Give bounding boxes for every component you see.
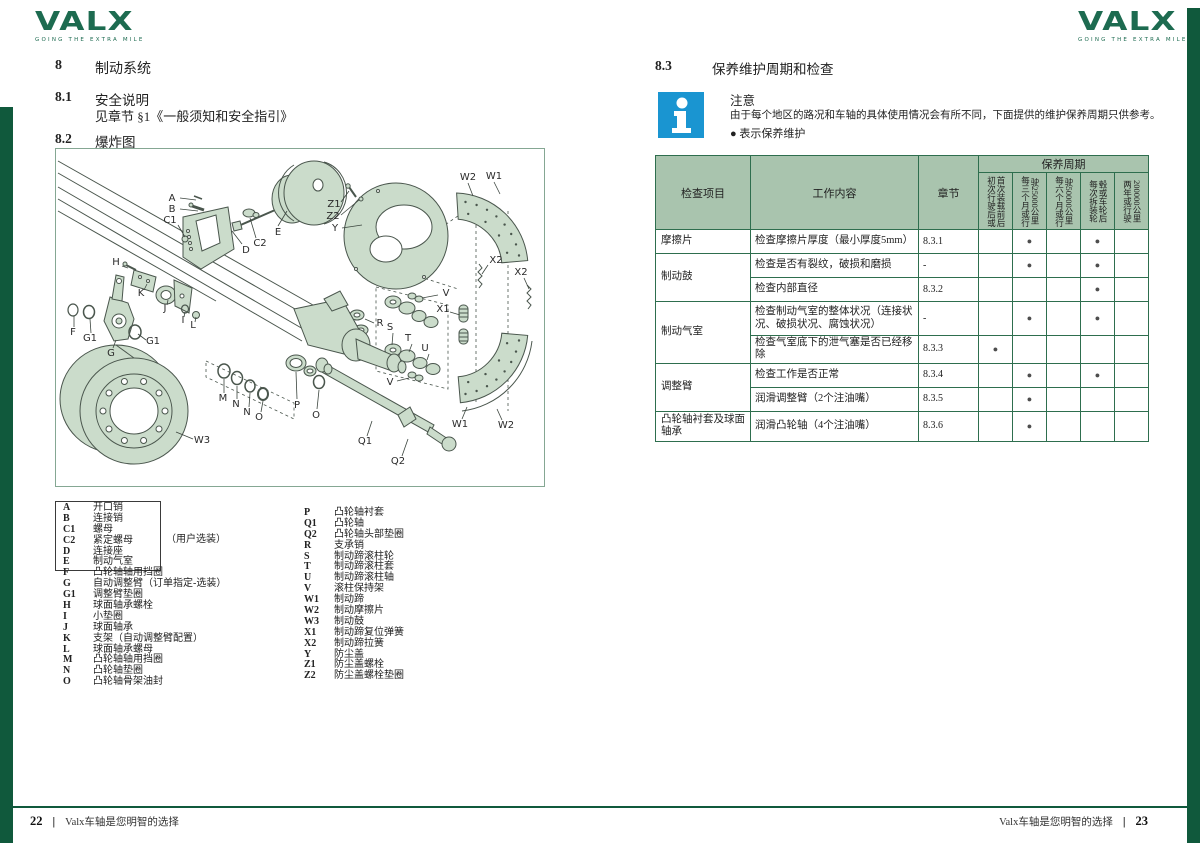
callout-label: S bbox=[387, 322, 393, 333]
legend-item: X2制动蹄拉簧 bbox=[298, 639, 548, 650]
callout-label: I bbox=[182, 315, 185, 326]
page-number: 23 bbox=[1136, 814, 1149, 829]
legend-column-right: P凸轮轴衬套Q1凸轮轴Q2凸轮轴头部垫圈R支承销S制动蹄滚柱轮T制动蹄滚柱套U制… bbox=[298, 508, 548, 682]
period-column-header: 每次拆装轮毂或车轮后 bbox=[1081, 173, 1115, 230]
section-ref-cell: 8.3.4 bbox=[919, 363, 979, 387]
empty-period-cell bbox=[979, 278, 1013, 302]
empty-period-cell bbox=[979, 302, 1013, 336]
footer-slogan: Valx车轴是您明智的选择 bbox=[65, 814, 179, 829]
callout-label: A bbox=[169, 193, 176, 204]
empty-period-cell bbox=[1115, 302, 1149, 336]
callout-label: J bbox=[163, 303, 167, 314]
period-column-header: 初次行驶后或首次装载前后 bbox=[979, 173, 1013, 230]
section-ref-cell: 8.3.6 bbox=[919, 411, 979, 441]
exploded-diagram-box: ABC1DC2EZ1Z2YW2W1X2X2VX1RSTUVHKJILFG1GG1… bbox=[55, 148, 545, 487]
empty-period-cell bbox=[1013, 336, 1047, 364]
empty-period-cell bbox=[1115, 363, 1149, 387]
callout-label: W3 bbox=[194, 435, 210, 446]
callout-label: W2 bbox=[460, 172, 476, 183]
section-number: 8 bbox=[55, 58, 95, 78]
empty-period-cell bbox=[1047, 336, 1081, 364]
callout-label: G bbox=[107, 348, 115, 359]
period-column-header: 两年或行驶200000公里 bbox=[1115, 173, 1149, 230]
callout-leader-line bbox=[261, 401, 263, 412]
work-content-cell: 检查内部直径 bbox=[751, 278, 919, 302]
callout-leader-line bbox=[402, 439, 408, 456]
callout-label: N bbox=[232, 399, 239, 410]
footer-right: Valx车轴是您明智的选择 | 23 bbox=[999, 814, 1148, 829]
legend-item-code: R bbox=[298, 541, 334, 552]
empty-period-cell bbox=[979, 387, 1013, 411]
table-row: 凸轮轴衬套及球面轴承润滑凸轮轴（4个注油嘴）8.3.6● bbox=[656, 411, 1149, 441]
maintenance-dot-cell: ● bbox=[1013, 411, 1047, 441]
callout-label: G1 bbox=[83, 333, 97, 344]
callout-leader-line bbox=[250, 218, 256, 238]
section-ref-cell: 8.3.2 bbox=[919, 278, 979, 302]
callout-label: G1 bbox=[146, 336, 160, 347]
callout-leader-line bbox=[296, 372, 297, 399]
empty-period-cell bbox=[1115, 336, 1149, 364]
callout-leader-line bbox=[367, 421, 372, 436]
maintenance-dot-cell: ● bbox=[1013, 230, 1047, 254]
legend-item-label: 制动蹄拉簧 bbox=[334, 639, 384, 650]
maintenance-dot-cell: ● bbox=[1013, 302, 1047, 336]
note-body: 由于每个地区的路况和车轴的具体使用情况会有所不同，下面提供的维护保养周期只供参考… bbox=[730, 107, 1161, 122]
empty-period-cell bbox=[1081, 411, 1115, 441]
section-8-3-heading: 8.3 保养维护周期和检查 bbox=[655, 58, 834, 78]
callout-label: P bbox=[294, 400, 300, 411]
callout-label: M bbox=[219, 393, 228, 404]
callout-label: F bbox=[70, 327, 76, 338]
note-dot-legend: ● 表示保养维护 bbox=[730, 125, 805, 141]
callout-leader-line bbox=[462, 407, 467, 419]
empty-period-cell bbox=[1047, 278, 1081, 302]
footer-left: 22 | Valx车轴是您明智的选择 bbox=[30, 814, 179, 829]
section-ref-cell: 8.3.5 bbox=[919, 387, 979, 411]
callout-label: C2 bbox=[253, 238, 266, 249]
empty-period-cell bbox=[979, 254, 1013, 278]
callout-label: R bbox=[377, 318, 384, 329]
legend-item: K支架（自动调整臂配置） bbox=[57, 634, 292, 645]
callout-leader-line bbox=[249, 393, 250, 407]
callout-label: X2 bbox=[514, 267, 527, 278]
callout-label: D bbox=[242, 245, 250, 256]
table-row: 制动鼓检查是否有裂纹，破损和磨损-●● bbox=[656, 254, 1149, 278]
info-icon bbox=[658, 92, 704, 138]
empty-period-cell bbox=[979, 230, 1013, 254]
valx-logo-text: VALX bbox=[35, 10, 172, 35]
inspection-item-cell: 凸轮轴衬套及球面轴承 bbox=[656, 411, 751, 441]
footer-slogan: Valx车轴是您明智的选择 bbox=[999, 814, 1113, 829]
legend-item-code: C2 bbox=[57, 536, 93, 547]
callout-leader-line bbox=[392, 333, 393, 345]
callout-label: U bbox=[421, 343, 428, 354]
footer-rule bbox=[13, 806, 1187, 808]
maintenance-dot-cell: ● bbox=[1081, 230, 1115, 254]
table-row: 制动气室检查制动气室的整体状况（连接状况、破损状况、腐蚀状况）-●● bbox=[656, 302, 1149, 336]
callout-label: L bbox=[190, 320, 196, 331]
valx-logo: VALX GOING THE EXTRA MILE bbox=[35, 10, 145, 43]
callout-leader-line bbox=[90, 319, 91, 333]
callout-label: K bbox=[138, 288, 145, 299]
callout-label: O bbox=[312, 410, 320, 421]
period-column-header: 每三个月或行驶25000公里 bbox=[1013, 173, 1047, 230]
maintenance-table: 检查项目 工作内容 章节 保养周期 初次行驶后或首次装载前后每三个月或行驶250… bbox=[655, 155, 1149, 442]
legend-item-label: 支承销 bbox=[334, 541, 364, 552]
callout-leader-line bbox=[397, 378, 409, 381]
col-header-work: 工作内容 bbox=[751, 156, 919, 230]
inspection-item-cell: 摩擦片 bbox=[656, 230, 751, 254]
section-title: 保养维护周期和检查 bbox=[712, 58, 834, 78]
callout-label: T bbox=[404, 333, 412, 344]
maintenance-dot-cell: ● bbox=[1013, 387, 1047, 411]
section-ref-cell: 8.3.3 bbox=[919, 336, 979, 364]
work-content-cell: 检查制动气室的整体状况（连接状况、破损状况、腐蚀状况） bbox=[751, 302, 919, 336]
maintenance-dot-cell: ● bbox=[1013, 254, 1047, 278]
empty-period-cell bbox=[1115, 230, 1149, 254]
section-title: 制动系统 bbox=[95, 58, 151, 78]
empty-period-cell bbox=[979, 363, 1013, 387]
callout-label: W1 bbox=[452, 419, 468, 430]
footer-separator: | bbox=[53, 814, 56, 829]
right-brand-bar bbox=[1187, 8, 1200, 843]
empty-period-cell bbox=[1047, 230, 1081, 254]
empty-period-cell bbox=[1115, 411, 1149, 441]
maintenance-dot-cell: ● bbox=[1081, 254, 1115, 278]
legend-item-code: K bbox=[57, 634, 93, 645]
callout-label: Y bbox=[331, 223, 339, 234]
empty-period-cell bbox=[1115, 254, 1149, 278]
section-number: 8.3 bbox=[655, 58, 712, 78]
legend-item-code: O bbox=[57, 677, 93, 688]
legend-item-code: Z2 bbox=[298, 671, 334, 682]
exploded-diagram: ABC1DC2EZ1Z2YW2W1X2X2VX1RSTUVHKJILFG1GG1… bbox=[56, 149, 544, 486]
legend-item-label: 支架（自动调整臂配置） bbox=[93, 634, 203, 645]
maintenance-dot-cell: ● bbox=[1081, 278, 1115, 302]
section-8-1-body: 见章节 §1《一般须知和安全指引》 bbox=[95, 106, 293, 125]
callout-leader-line bbox=[317, 390, 319, 409]
callout-label: V bbox=[443, 288, 450, 299]
maintenance-dot-cell: ● bbox=[1013, 363, 1047, 387]
callout-leader-line bbox=[494, 182, 500, 194]
work-content-cell: 检查摩擦片厚度（最小厚度5mm） bbox=[751, 230, 919, 254]
empty-period-cell bbox=[1013, 278, 1047, 302]
legend-item-label: 紧定螺母 bbox=[93, 536, 133, 547]
valx-logo-text: VALX bbox=[1078, 10, 1200, 35]
empty-period-cell bbox=[1047, 254, 1081, 278]
valx-logo-tagline: GOING THE EXTRA MILE bbox=[35, 37, 145, 43]
callout-label: Z2 bbox=[326, 211, 339, 222]
empty-period-cell bbox=[1081, 336, 1115, 364]
callout-label: O bbox=[255, 412, 263, 423]
legend-item-code: X2 bbox=[298, 639, 334, 650]
callout-label: W1 bbox=[486, 171, 502, 182]
callout-label: B bbox=[169, 204, 176, 215]
table-row: 调整臂检查工作是否正常8.3.4●● bbox=[656, 363, 1149, 387]
callout-leader-line bbox=[365, 319, 374, 323]
inspection-item-cell: 制动鼓 bbox=[656, 254, 751, 302]
section-ref-cell: - bbox=[919, 254, 979, 278]
section-ref-cell: - bbox=[919, 302, 979, 336]
callout-label: N bbox=[243, 407, 250, 418]
callout-leader-line bbox=[180, 209, 198, 211]
callout-label: Q2 bbox=[391, 456, 405, 467]
legend-item: O凸轮轴骨架油封 bbox=[57, 677, 292, 688]
col-header-section: 章节 bbox=[919, 156, 979, 230]
page-number: 22 bbox=[30, 814, 43, 829]
legend-item: R支承销 bbox=[298, 541, 548, 552]
callout-leader-line bbox=[524, 278, 529, 289]
inspection-item-cell: 调整臂 bbox=[656, 363, 751, 411]
maintenance-dot-cell: ● bbox=[1081, 302, 1115, 336]
valx-logo-tagline: GOING THE EXTRA MILE bbox=[1078, 37, 1188, 43]
callout-label: X1 bbox=[436, 304, 449, 315]
callout-label: W2 bbox=[498, 420, 514, 431]
table-row: 摩擦片检查摩擦片厚度（最小厚度5mm）8.3.1●● bbox=[656, 230, 1149, 254]
work-content-cell: 润滑凸轮轴（4个注油嘴） bbox=[751, 411, 919, 441]
valx-logo: VALX GOING THE EXTRA MILE bbox=[1078, 10, 1188, 43]
empty-period-cell bbox=[979, 411, 1013, 441]
empty-period-cell bbox=[1115, 387, 1149, 411]
callout-label: H bbox=[112, 257, 120, 268]
legend-item: Z2防尘盖螺栓垫圈 bbox=[298, 671, 548, 682]
callout-label: E bbox=[275, 227, 281, 238]
work-content-cell: 润滑调整臂（2个注油嘴） bbox=[751, 387, 919, 411]
empty-period-cell bbox=[1047, 387, 1081, 411]
callout-label: X2 bbox=[489, 255, 502, 266]
col-header-period: 保养周期 bbox=[979, 156, 1149, 173]
period-column-header: 每六个月或行驶50000公里 bbox=[1047, 173, 1081, 230]
callout-label: Q1 bbox=[358, 436, 372, 447]
callout-leader-line bbox=[422, 295, 438, 298]
section-number: 8.1 bbox=[55, 89, 95, 109]
left-brand-bar bbox=[0, 107, 13, 843]
empty-period-cell bbox=[1115, 278, 1149, 302]
empty-period-cell bbox=[1081, 387, 1115, 411]
legend-optional-note: （用户选装） bbox=[166, 530, 226, 545]
callout-label: C1 bbox=[163, 215, 176, 226]
legend-item-label: 防尘盖螺栓垫圈 bbox=[334, 671, 404, 682]
empty-period-cell bbox=[1047, 363, 1081, 387]
col-header-item: 检查项目 bbox=[656, 156, 751, 230]
callout-label: V bbox=[387, 377, 394, 388]
callout-leader-line bbox=[497, 409, 502, 420]
callout-leader-line bbox=[180, 198, 196, 200]
maintenance-dot-cell: ● bbox=[1081, 363, 1115, 387]
empty-period-cell bbox=[1047, 411, 1081, 441]
callout-leader-line bbox=[482, 265, 488, 274]
work-content-cell: 检查是否有裂纹，破损和磨损 bbox=[751, 254, 919, 278]
empty-period-cell bbox=[1047, 302, 1081, 336]
legend-item-label: 凸轮轴骨架油封 bbox=[93, 677, 163, 688]
callout-label: Z1 bbox=[327, 199, 340, 210]
work-content-cell: 检查气室底下的泄气塞是否已经移除 bbox=[751, 336, 919, 364]
work-content-cell: 检查工作是否正常 bbox=[751, 363, 919, 387]
section-8-heading: 8 制动系统 bbox=[55, 58, 151, 78]
callout-leader-line bbox=[427, 354, 429, 360]
maintenance-dot-cell: ● bbox=[979, 336, 1013, 364]
section-ref-cell: 8.3.1 bbox=[919, 230, 979, 254]
footer-separator: | bbox=[1123, 814, 1126, 829]
inspection-item-cell: 制动气室 bbox=[656, 302, 751, 364]
